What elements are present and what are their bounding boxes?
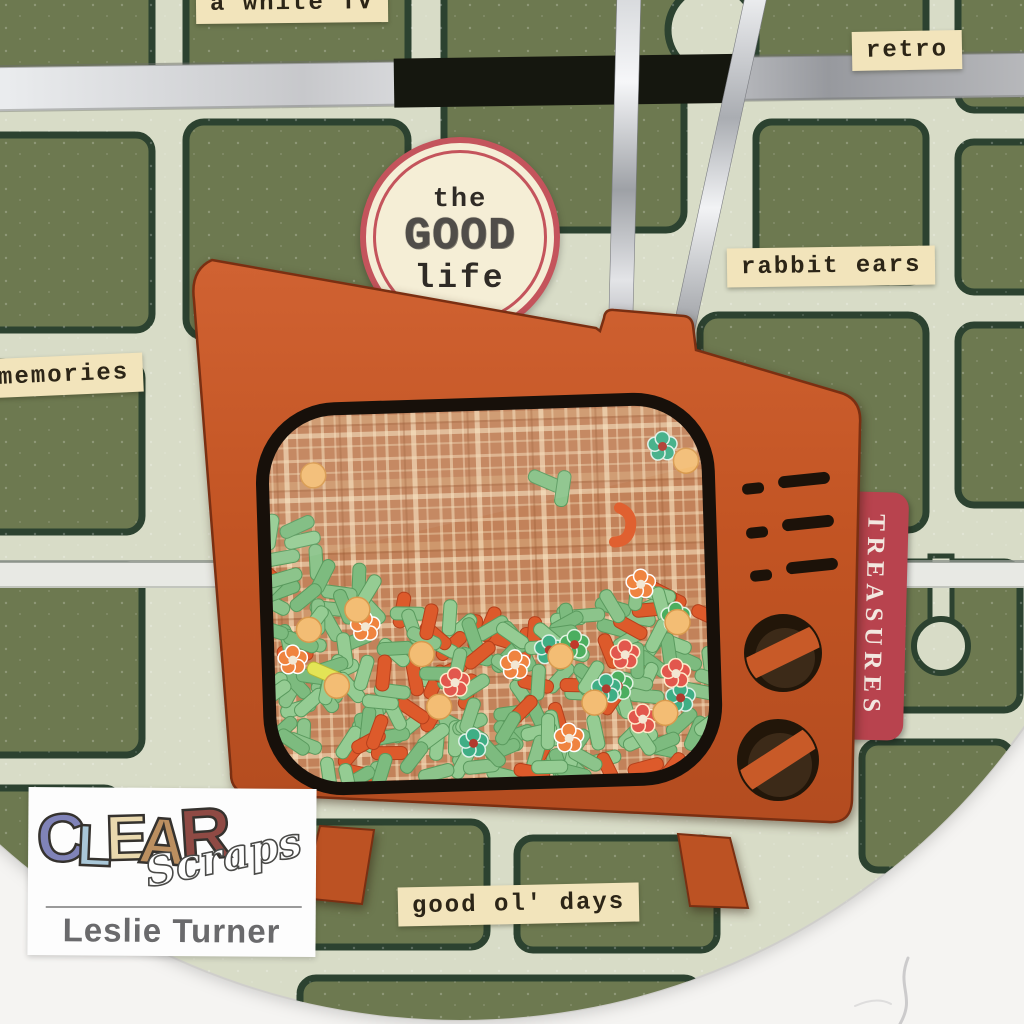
badge-line-life: life <box>414 261 505 297</box>
pencil-squiggle <box>855 958 908 1024</box>
tv-screen <box>260 397 718 791</box>
badge-line-the: the <box>433 187 488 213</box>
tv-knob-upper <box>733 614 833 692</box>
sticker-a-white-tv: a white TV <box>196 0 388 24</box>
tv-leg-right <box>678 834 748 908</box>
good-life-badge: the GOOD life <box>360 137 560 337</box>
map-culdesac <box>914 619 968 673</box>
tv-knob-lower <box>728 719 828 801</box>
sticker-retro: retro <box>852 30 963 71</box>
clear-scraps-watermark: CLEAR Scraps Leslie Turner <box>27 787 316 957</box>
speaker-vents <box>742 471 839 582</box>
tv-screen-frame <box>260 397 718 791</box>
logo-byline: Leslie Turner <box>27 911 315 951</box>
shaker-sprinkles <box>246 430 735 804</box>
tv-body <box>193 260 860 822</box>
treasures-tab: TREASURES <box>837 491 909 741</box>
map-culdesac-stub <box>930 556 952 626</box>
antenna-right <box>668 0 768 352</box>
sticker-memories: memories <box>0 353 144 399</box>
badge-line-good: GOOD <box>404 213 516 261</box>
map-plaza <box>668 0 756 74</box>
craft-photo-stage: the GOOD life TREASURES <box>0 0 1024 1024</box>
treasures-tab-label: TREASURES <box>856 514 889 719</box>
screen-glare <box>260 397 711 567</box>
antenna-left <box>608 0 641 352</box>
logo-divider <box>46 906 302 908</box>
sticker-rabbit-ears: rabbit ears <box>727 246 936 288</box>
sticker-good-ol-days: good ol' days <box>398 882 640 926</box>
